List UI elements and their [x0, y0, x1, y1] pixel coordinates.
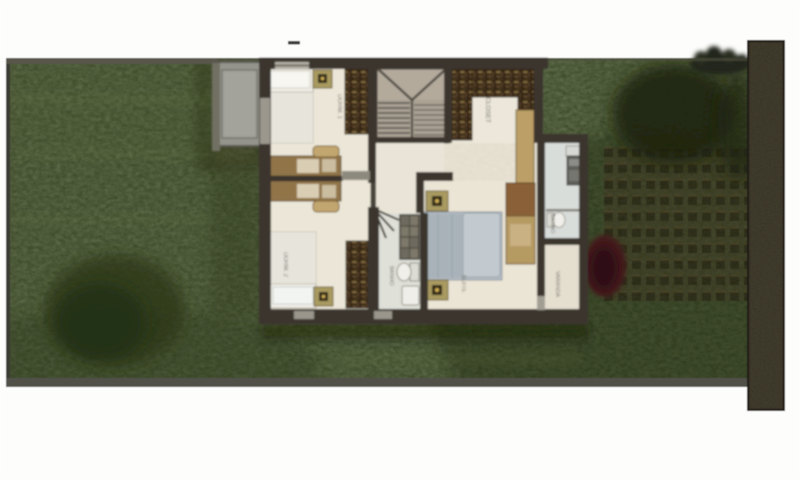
- svg-text:CLOSET: CLOSET: [484, 97, 491, 123]
- svg-text:BANHO: BANHO: [388, 266, 394, 286]
- svg-text:VARANDA: VARANDA: [554, 271, 560, 298]
- svg-text:SUITE: SUITE: [460, 275, 466, 293]
- svg-text:BANHO: BANHO: [549, 214, 555, 234]
- svg-text:DORM. 2: DORM. 2: [282, 252, 288, 278]
- svg-text:DORM. 1: DORM. 1: [336, 94, 342, 120]
